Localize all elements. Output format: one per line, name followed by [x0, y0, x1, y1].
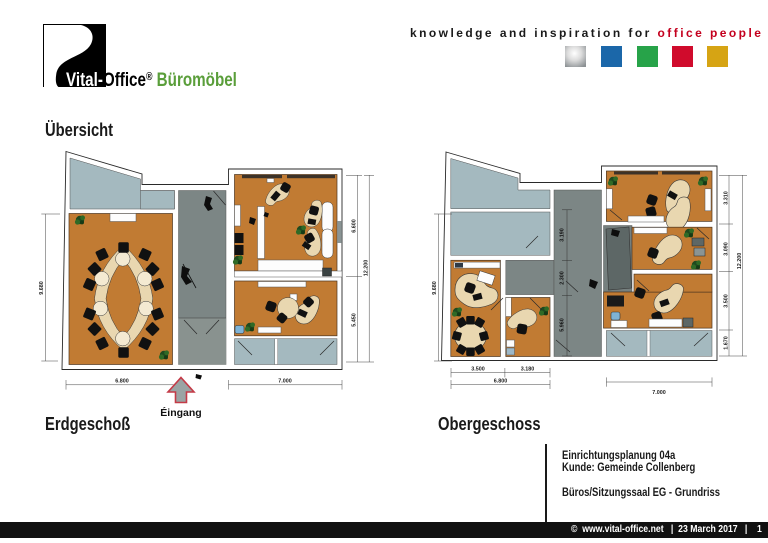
svg-text:2.300: 2.300: [560, 271, 566, 285]
svg-text:9.680: 9.680: [432, 281, 438, 295]
svg-text:5.960: 5.960: [560, 318, 566, 332]
svg-text:6.600: 6.600: [352, 219, 358, 233]
svg-text:Éingang: Éingang: [160, 406, 201, 419]
svg-text:3.500: 3.500: [471, 367, 485, 373]
svg-text:5.450: 5.450: [352, 313, 358, 327]
svg-text:9.680: 9.680: [39, 281, 45, 295]
svg-text:3.190: 3.190: [560, 228, 566, 242]
svg-text:7.000: 7.000: [278, 379, 292, 385]
svg-text:3.180: 3.180: [521, 367, 535, 373]
svg-text:12.200: 12.200: [364, 260, 370, 277]
svg-text:3.500: 3.500: [724, 294, 730, 308]
svg-text:3.090: 3.090: [724, 242, 730, 256]
svg-text:6.800: 6.800: [115, 379, 129, 385]
svg-text:6.800: 6.800: [494, 378, 508, 384]
svg-text:3.310: 3.310: [724, 191, 730, 205]
svg-text:12.200: 12.200: [737, 253, 743, 270]
svg-text:7.000: 7.000: [652, 390, 666, 396]
svg-text:1.670: 1.670: [724, 336, 730, 350]
